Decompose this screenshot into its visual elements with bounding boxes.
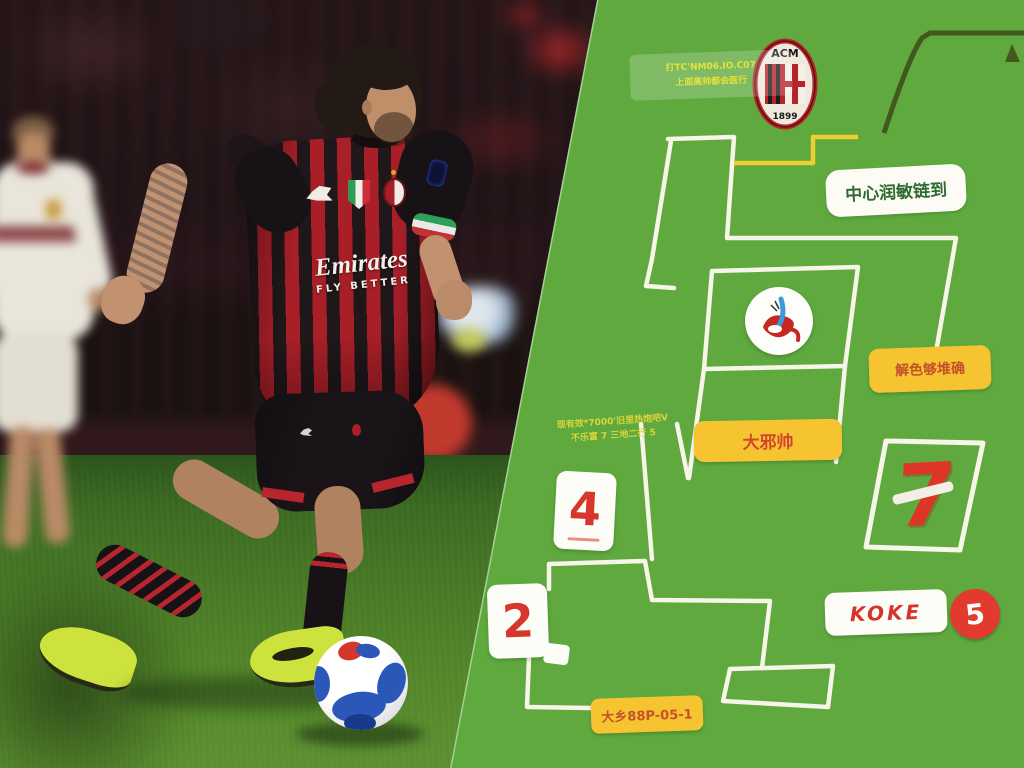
- collage-stage: Emirates FLY BETTER: [0, 0, 1024, 768]
- route-arrow-icon: [1005, 44, 1020, 62]
- number-4: 4: [568, 481, 603, 537]
- club-logo-circle: [745, 287, 813, 355]
- player-hair-fringe: [358, 58, 414, 90]
- opponent-shorts: [0, 334, 78, 432]
- number-card-4: 4: [553, 470, 617, 551]
- badge-year: 1899: [772, 112, 797, 122]
- ball-blue-panel: [314, 666, 330, 702]
- koke-name-label: KOKE: [824, 589, 947, 636]
- club-logo-icon: [745, 287, 813, 355]
- top-note-label: 打TC'NM06.IO.C07 上面高帅都会医行: [629, 49, 793, 101]
- opponent-crest: [46, 200, 61, 219]
- player-front-fist: [436, 280, 472, 320]
- match-ball: [314, 636, 408, 730]
- number-badge-5: 5: [948, 587, 1003, 642]
- top-note-line2: 上面高帅都会医行: [675, 74, 748, 92]
- mid-yellow-label: 大邪帅: [694, 419, 843, 463]
- milan-crest-small-icon: [383, 178, 406, 207]
- gold-star-icon: [391, 170, 396, 175]
- ball-blue-panel: [344, 714, 376, 730]
- card-2-tab: [543, 643, 570, 666]
- right-yellow-label: 解色够堆确: [868, 345, 991, 393]
- player-ear: [362, 100, 372, 115]
- player-beard: [374, 112, 414, 146]
- four-note-label: 现有效*7000'旧里热炮吧V 不乐富 7 三地二行 5: [537, 411, 689, 448]
- blurred-sign-yellow: [452, 328, 486, 352]
- bottom-code-label: 大乡88P-05-1: [590, 695, 703, 734]
- card-4-underline: [567, 537, 599, 542]
- milan-crest-small-icon: [352, 424, 361, 436]
- center-white-label: 中心润敏链到: [825, 163, 967, 217]
- number-card-2: 2: [487, 583, 550, 659]
- ball-logo-blue: [355, 642, 381, 660]
- number-2: 2: [501, 593, 535, 648]
- opponent-collar: [16, 162, 50, 174]
